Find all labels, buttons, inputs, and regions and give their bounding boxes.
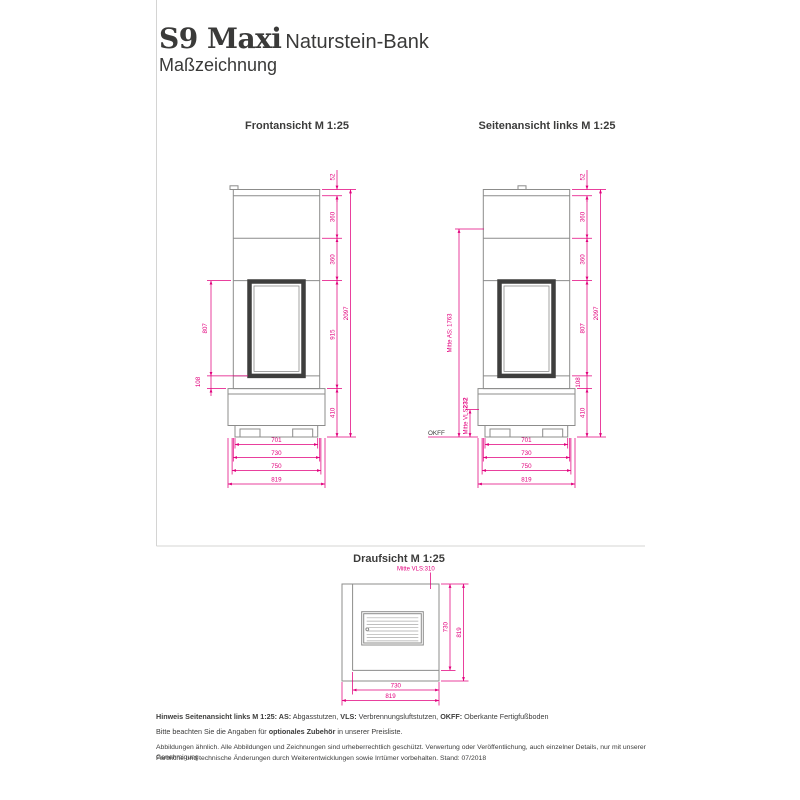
- front-view-drawing: 52 360 360 915 410 2097 807 108 701 730 …: [195, 170, 356, 488]
- top-dimension-lines: [342, 573, 469, 706]
- page-divider-lines: [157, 0, 646, 546]
- top-view-drawing: Mitte VLS:310 730 819 730 819: [342, 567, 469, 706]
- dim-front-total-height: 2097: [343, 306, 350, 320]
- zubehoer-bold: optionales Zubehör: [269, 727, 336, 736]
- top-outline: [342, 584, 439, 681]
- side-glass: [500, 282, 554, 376]
- dim-top-mitte-vls: Mitte VLS:310: [397, 567, 435, 573]
- dim-side-segment-upper: 360: [579, 211, 586, 222]
- hinweis-bold-3: OKFF:: [440, 712, 462, 721]
- hinweis-text-2: Verbrennungsluftstutzen,: [357, 712, 441, 721]
- dim-side-bench-height: 410: [579, 407, 586, 418]
- dim-top-width-total: 819: [385, 693, 396, 700]
- hinweis-bold-1: Hinweis Seitenansicht links M 1:25: AS:: [156, 712, 291, 721]
- dim-front-width-total: 819: [271, 477, 282, 484]
- top-dimension-labels: Mitte VLS:310 730 819 730 819: [385, 567, 462, 701]
- dim-front-segment-door-area: 915: [329, 329, 336, 340]
- dim-front-width-plinth: 701: [271, 437, 282, 444]
- dim-side-depth-total: 819: [521, 477, 532, 484]
- copyright-line-2: Farbliche und technische Änderungen durc…: [156, 754, 656, 764]
- dim-top-depth-body: 730: [443, 621, 450, 632]
- datasheet-page: S9 MaxiNaturstein-Bank Maßzeichnung Fron…: [0, 0, 800, 800]
- dim-side-depth-plinth: 701: [521, 437, 532, 444]
- dim-side-mitte-vls-value: 232: [462, 397, 469, 409]
- dim-side-depth-slab: 750: [521, 463, 532, 470]
- hinweis-bold-2: VLS:: [340, 712, 356, 721]
- zubehoer-note: Bitte beachten Sie die Angaben für optio…: [156, 727, 676, 736]
- dim-side-segment-mid: 360: [579, 254, 586, 265]
- zubehoer-text-1: Bitte beachten Sie die Angaben für: [156, 727, 269, 736]
- dim-front-segment-upper: 360: [329, 211, 336, 222]
- dim-side-mitte-as: Mitte AS: 1763: [448, 313, 454, 353]
- dim-front-width-body: 730: [271, 450, 282, 457]
- front-door: [250, 282, 304, 376]
- hinweis-text-3: Oberkante Fertigfußboden: [462, 712, 548, 721]
- dim-side-total-height: 2097: [593, 306, 600, 320]
- top-grille-slats: [367, 618, 419, 641]
- dim-side-mitte-vls-label: Mitte VLS: [463, 408, 469, 434]
- technical-drawing-canvas: 52 360 360 915 410 2097 807 108 701 730 …: [0, 0, 800, 800]
- zubehoer-text-2: in unserer Preisliste.: [335, 727, 402, 736]
- dim-front-door-offset: 108: [195, 376, 202, 387]
- dim-side-depth-body: 730: [521, 450, 532, 457]
- dim-side-door-height: 807: [579, 323, 586, 334]
- hinweis-text-1: Abgasstutzen,: [291, 712, 340, 721]
- dim-side-door-offset: 108: [575, 377, 582, 388]
- side-view-drawing: 52 360 360 807 108 410 2097 Mitte AS: 17…: [428, 170, 606, 488]
- dim-front-bench-height: 410: [329, 407, 336, 418]
- dim-front-segment-mid: 360: [329, 254, 336, 265]
- dim-front-door-height: 807: [202, 323, 209, 334]
- dim-top-width-body: 730: [391, 683, 402, 690]
- dim-front-width-slab: 750: [271, 463, 282, 470]
- dim-top-depth-total: 819: [456, 627, 463, 638]
- hinweis-note: Hinweis Seitenansicht links M 1:25: AS: …: [156, 712, 676, 721]
- dim-side-top-slab: 52: [579, 173, 586, 180]
- dim-front-top-slab: 52: [329, 173, 336, 180]
- label-okff: OKFF: [428, 430, 445, 437]
